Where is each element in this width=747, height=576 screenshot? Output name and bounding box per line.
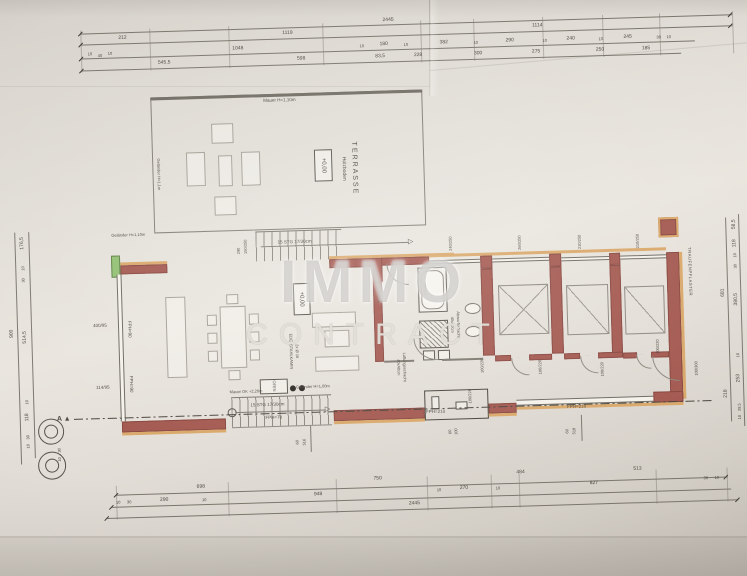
dim-label: 30 (26, 435, 30, 440)
witness-line (491, 475, 493, 509)
dim-label: 40x40cm (450, 316, 454, 332)
dim-label: Mauer H=1,10m (263, 98, 296, 103)
dim-label: 180/80 (423, 283, 427, 295)
witness-line (228, 482, 230, 516)
witness-line (656, 470, 658, 504)
bed (624, 285, 665, 334)
dim-label: 290 (505, 38, 513, 43)
dim-label: 10 (58, 457, 62, 462)
dimension-line (581, 415, 583, 441)
wall-segment (495, 355, 511, 361)
dim-label: 10 (714, 476, 719, 480)
dim-label: FPH=70 (265, 416, 282, 421)
dim-label: 58,5 (732, 219, 737, 229)
dim-label: 60 (565, 429, 569, 434)
dim-label: FPH=90 (128, 376, 133, 393)
dim-label: 250 (596, 48, 604, 53)
dim-label: 240 (566, 36, 574, 41)
dim-label: 118 (25, 413, 30, 421)
dim-label: 1114 (532, 23, 543, 28)
dim-label: 100/220 (480, 358, 484, 373)
wall-segment (329, 258, 377, 268)
dim-label: 400/95 (93, 324, 107, 329)
sofa (312, 312, 356, 328)
dimension-line (738, 214, 745, 426)
sideboard (165, 297, 187, 379)
wall-segment (564, 353, 580, 359)
dim-label: 10 (542, 39, 547, 43)
chair (249, 331, 259, 342)
dim-label: 10 (738, 415, 742, 420)
dim-label: 10 (437, 488, 442, 492)
terrace-furniture (186, 152, 206, 187)
coffee-table (324, 330, 349, 348)
eaves-label: TRAUFENPFLASTER (687, 247, 693, 296)
dim-label: 1048 (232, 46, 243, 51)
witness-line (726, 468, 728, 502)
dim-label: 545,5 (158, 60, 171, 65)
dim-label: 30 (704, 476, 709, 480)
dim-label: 10 (736, 353, 740, 358)
dim-label: 40 (98, 54, 103, 58)
dim-label: 290 (160, 498, 168, 503)
chimney-label: 2x Ø 16 (295, 344, 299, 358)
dim-label: 10 (666, 35, 671, 39)
witness-line (427, 476, 429, 510)
dimension-tick (735, 497, 740, 502)
witness-line (732, 11, 734, 53)
witness-line (80, 31, 82, 73)
dim-label: 30 (58, 448, 62, 453)
dim-label: 10 (598, 37, 603, 41)
dim-label: 300 (474, 51, 482, 56)
dim-label: 380,5 (734, 293, 739, 306)
dim-label: 10 (108, 52, 113, 56)
dim-label: 30 (127, 500, 132, 504)
wall-segment (598, 352, 623, 359)
dim-label: 10 (360, 44, 365, 48)
dim-label: Geländer H=1,1m (156, 158, 161, 190)
dim-label: 228 (414, 53, 422, 58)
dim-label: Mauer OK +2,20m (230, 389, 263, 394)
insulation (489, 413, 517, 417)
dim-label: 40x40cm (396, 359, 400, 375)
window (492, 257, 549, 263)
dim-label: 750 (373, 476, 381, 481)
wall-segment (549, 253, 561, 266)
dim-label: 275 (532, 49, 540, 54)
dim-label: 10 (404, 43, 409, 47)
window (620, 254, 666, 259)
terrace-furniture (241, 151, 261, 186)
dim-label: 100/220 (468, 389, 472, 404)
dim-label: 10 (733, 253, 737, 258)
wall-segment (609, 265, 623, 353)
dim-label: 10 (88, 52, 93, 56)
window (561, 256, 609, 261)
dim-label: 1119 (282, 31, 293, 36)
chimney-label: EDELSTAHLKAMIN (288, 334, 293, 370)
dimension-line (107, 499, 739, 519)
terrace-level: +0,00 (320, 158, 326, 173)
dim-label: Abwurfschacht (456, 311, 461, 337)
dim-label: 10 (25, 400, 29, 405)
dim-label: 513 (633, 467, 641, 472)
bath-wall (442, 358, 483, 361)
witness-line (336, 479, 338, 513)
chair (207, 333, 217, 344)
dim-label: 185 (642, 46, 650, 51)
dimension-line (80, 14, 732, 34)
door-arc (636, 354, 651, 369)
terrace-furniture (218, 155, 233, 186)
wall-segment (480, 255, 492, 268)
wall-segment (623, 352, 637, 358)
bed (498, 284, 549, 335)
washbasin (464, 303, 480, 314)
dim-label: 698 (197, 485, 205, 490)
chair (207, 315, 217, 326)
dim-label: 114/95 (96, 386, 110, 391)
wall-segment (609, 253, 620, 265)
dim-label: 10 (202, 498, 207, 502)
dim-label: 60 (295, 440, 299, 445)
dim-label: 290 (237, 248, 241, 255)
dim-label: 176,5 (20, 237, 25, 250)
dim-label: 240/250 (449, 236, 453, 251)
door-arc (580, 355, 599, 374)
dim-label: 100/220 (600, 362, 604, 377)
dim-label: 212 (118, 36, 126, 41)
dim-label: 100 (454, 428, 458, 435)
dim-label: ▷ (408, 238, 414, 245)
floor-plan-photo: +0,00 TERRASSE Holzboden (0, 0, 747, 576)
dining-table (219, 306, 247, 369)
dim-label: FPH=90 (127, 321, 132, 338)
chair (250, 349, 260, 360)
dim-label: 10 (116, 501, 121, 505)
terrace-furniture (211, 123, 234, 144)
chair (226, 294, 238, 304)
witness-line (149, 28, 151, 70)
dim-label: 30 (733, 264, 737, 269)
terrace-floor-label: Holzboden (341, 157, 347, 181)
dim-label: 2445 (382, 18, 393, 23)
chair (208, 351, 218, 362)
door-arc (414, 338, 439, 361)
dim-label: Lüftungsschacht (402, 352, 407, 381)
dim-label: 210/250 (578, 235, 582, 250)
dim-label: 518 (572, 428, 576, 435)
chair (228, 370, 240, 380)
dimension-line (310, 426, 312, 452)
dimension-line (28, 232, 36, 458)
terrace-furniture (214, 196, 237, 216)
dim-label: 598 (297, 56, 305, 61)
dim-label: 253 (736, 374, 741, 382)
dim-label: 827 (590, 481, 598, 486)
dim-label: 180 (380, 42, 388, 47)
dim-label: 245 (623, 35, 631, 40)
dim-label: 10 (26, 444, 30, 449)
window (429, 259, 480, 265)
dim-label: 10 (21, 266, 25, 271)
sofa (315, 355, 359, 371)
dim-label: 484 (516, 470, 524, 475)
window-band-west (116, 274, 125, 421)
dim-label: ▷ (325, 406, 331, 413)
living-level: +0,00 (298, 291, 304, 306)
door-arc (386, 263, 409, 286)
dim-label: 60 (448, 429, 452, 434)
dim-label: 218 (724, 389, 729, 397)
oven-label: OFEN (272, 380, 276, 391)
dim-label: 100/220 (656, 339, 660, 354)
dim-label: 90/220 (377, 291, 381, 303)
dim-label: 2445 (409, 501, 420, 506)
dim-label: 382 (440, 40, 448, 45)
door-arc (511, 357, 530, 376)
dim-label: FPH=210 (426, 410, 445, 415)
wall-segment (480, 268, 495, 355)
dim-label: 516 (302, 439, 306, 446)
dim-label: 118 (732, 239, 737, 247)
door-arc (652, 355, 680, 382)
wall-segment (549, 266, 564, 353)
witness-line (228, 26, 230, 68)
witness-line (322, 23, 324, 65)
dim-label: 100/220 (538, 360, 542, 375)
dim-label: 100/300 (694, 361, 698, 376)
dim-label: 948 (314, 492, 322, 497)
dim-label: 210/250 (636, 234, 640, 249)
bed (566, 284, 609, 335)
wall-segment (120, 264, 167, 274)
dim-label: 30 (656, 35, 661, 39)
dim-label: 150/250 (244, 239, 248, 254)
dim-label: 10 (496, 486, 501, 490)
floor-plan-drawing: +0,00 TERRASSE Holzboden (0, 0, 747, 576)
dim-label: 83,5 (375, 54, 385, 59)
dim-label: 260/250 (518, 235, 522, 250)
dim-label: 270 (460, 486, 468, 491)
chair (249, 313, 259, 324)
dim-label: FPH=210 (567, 404, 586, 409)
dim-label: Geländer H=1,00m (296, 384, 330, 389)
dim-label: 514,5 (23, 331, 28, 344)
dimension-line (116, 477, 728, 496)
corner-pier (658, 217, 679, 238)
dim-label: 29,5 (738, 403, 742, 411)
dim-label: 10 (473, 41, 478, 45)
dim-label: 681 (721, 288, 726, 296)
washbasin (465, 326, 481, 337)
witness-line (519, 474, 521, 508)
dim-label: 30 (22, 278, 26, 283)
dim-label: 900 (10, 329, 15, 337)
dim-label: Geländer H=1,10m (111, 233, 145, 238)
